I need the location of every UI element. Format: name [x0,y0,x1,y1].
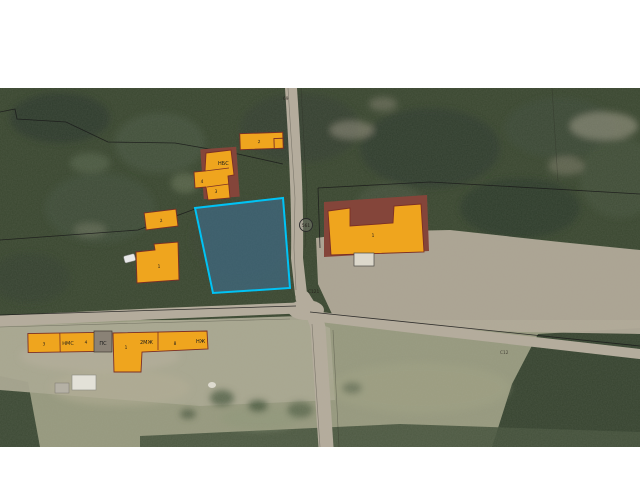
building-number: 3 [43,341,46,347]
satellite-map[interactable]: 2 НБС 4 3 2 1 1 [0,88,640,447]
gray-shed [55,383,69,393]
boundary-point-label: 69 [283,96,289,102]
building-number: 1 [125,345,128,351]
building-number: 8 [174,341,177,347]
selected-parcel[interactable] [195,198,290,293]
top-letterbox [0,0,640,88]
road-number-badge: 561 [300,219,313,232]
building-left-small[interactable]: 2 [144,209,178,230]
building-number: 1 [158,264,161,270]
white-object [208,382,216,388]
building-number: 1 [372,233,375,239]
building-number: 4 [201,179,204,185]
building-type-label: НБС [218,161,229,167]
building-row-a[interactable]: 3 НМС 4 [28,332,96,352]
building-annex [354,253,374,266]
building-type-label: НЖ [196,339,206,345]
building-substation[interactable]: ПС [94,331,112,352]
building-number: 2 [258,139,261,145]
road-intersection [288,300,324,320]
building-number: 3 [215,189,218,195]
street-code-label: С12 [500,350,509,356]
building-type-label: 2МЖ [140,340,153,346]
selected-parcel-shape[interactable] [195,198,290,293]
building-type-label: НМС [62,341,74,347]
building-top-small[interactable]: 2 [240,132,284,149]
street-code-label: С121 [308,289,319,295]
building-type-label: ПС [99,341,107,347]
white-shed [72,375,96,390]
building-number: 4 [85,340,88,346]
bottom-letterbox [0,447,640,480]
road-number-label: 561 [302,223,310,229]
map-canvas[interactable]: 2 НБС 4 3 2 1 1 [0,88,640,447]
